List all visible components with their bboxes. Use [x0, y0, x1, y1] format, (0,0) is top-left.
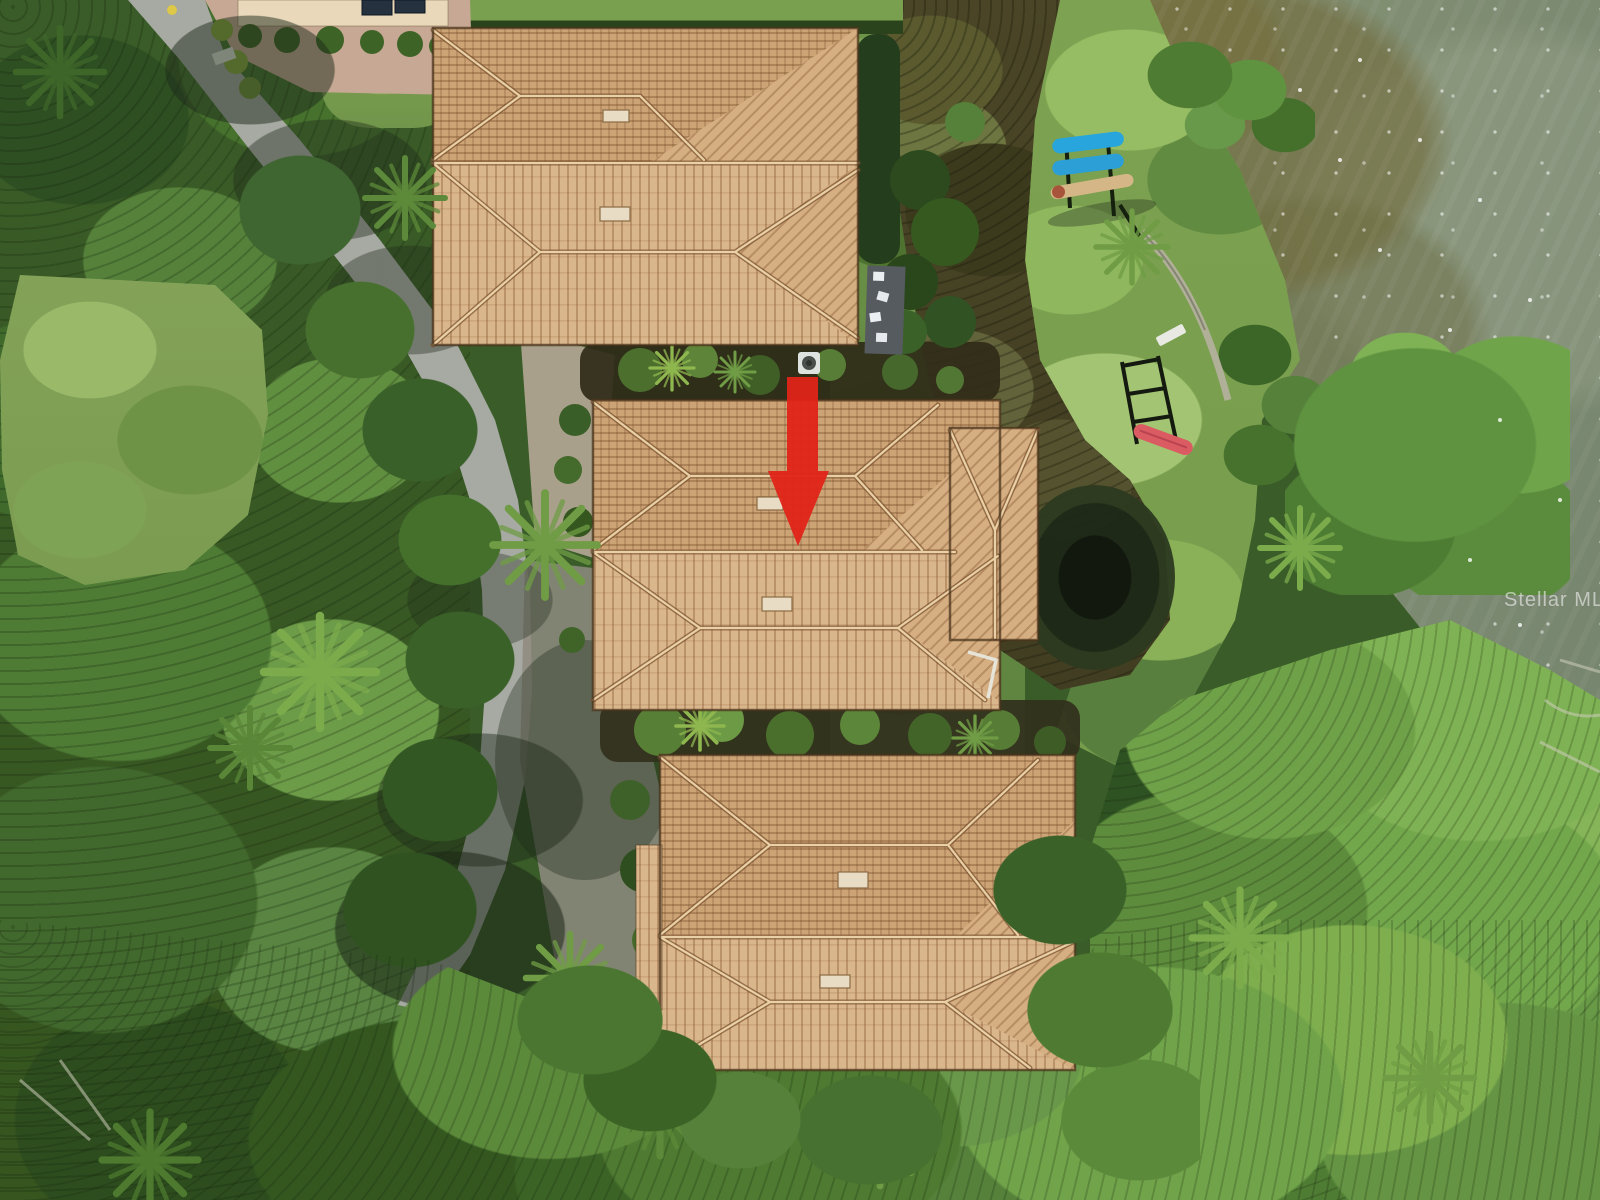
roof-vent — [838, 872, 868, 888]
roof-vent — [600, 207, 630, 221]
roof-vent — [757, 497, 783, 510]
paddleboard-tan — [1050, 172, 1135, 200]
ac-unit — [798, 352, 820, 374]
roof-vent — [603, 110, 629, 122]
deck-chair — [869, 312, 881, 322]
paddleboard-blue — [1051, 153, 1124, 177]
white-plank — [1155, 324, 1186, 347]
deck-chair — [873, 272, 884, 281]
rear-deck — [864, 265, 905, 354]
red-kayak — [1131, 422, 1194, 457]
bottom-home-roof — [636, 755, 1075, 1070]
detail-layer — [0, 0, 1600, 1200]
aerial-photo: Stellar MLS — [0, 0, 1600, 1200]
roof-vent — [762, 597, 792, 611]
kayak-rack — [1122, 324, 1195, 458]
paddleboard-blue — [1051, 131, 1124, 155]
water-glints — [1298, 58, 1562, 627]
roof-vent — [820, 975, 850, 988]
top-home-roof — [433, 28, 858, 345]
mls-watermark: Stellar MLS — [1504, 589, 1600, 612]
deck-chair — [876, 333, 887, 342]
